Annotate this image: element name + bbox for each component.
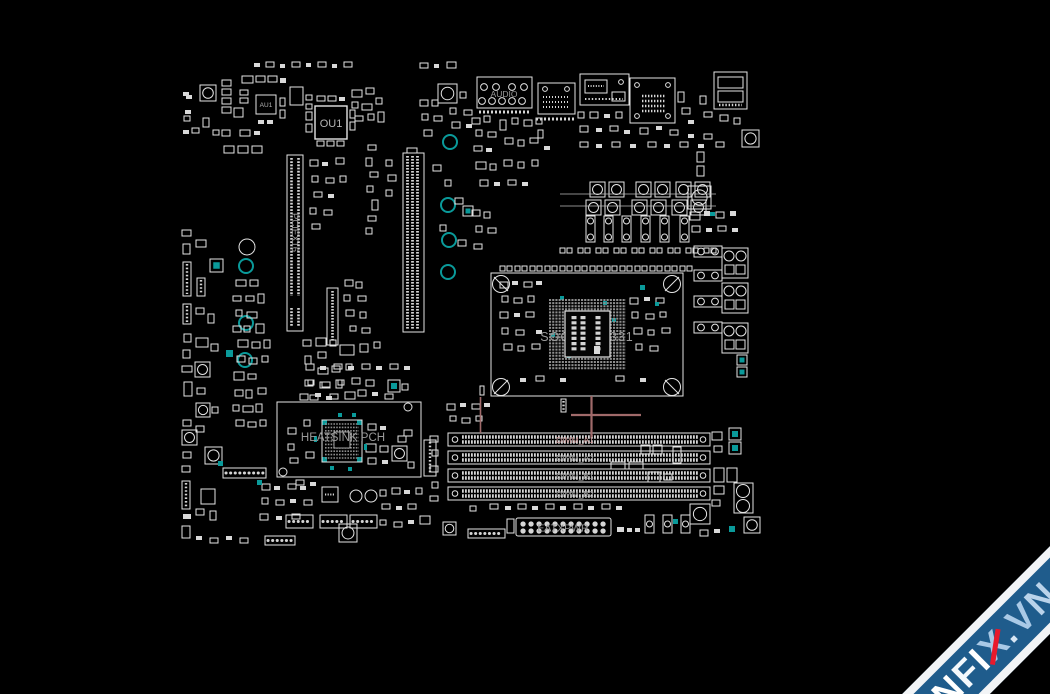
component	[339, 97, 345, 101]
component	[512, 281, 518, 285]
component	[560, 506, 566, 510]
component	[315, 393, 321, 397]
component	[466, 124, 472, 128]
component	[729, 526, 735, 532]
boardview-canvas: OU1 AU1 AUDIO	[0, 0, 1050, 694]
component	[357, 457, 362, 462]
component	[673, 519, 678, 524]
component	[520, 378, 526, 382]
component	[635, 528, 640, 532]
component	[617, 527, 624, 532]
chip-au1-label: AU1	[260, 102, 273, 109]
component	[382, 460, 388, 464]
component	[630, 144, 636, 148]
component	[536, 281, 542, 285]
component	[404, 490, 410, 494]
dimm-b2-label: DIMM_B2	[556, 489, 594, 499]
component	[185, 110, 191, 114]
component	[522, 182, 528, 186]
component	[348, 467, 352, 471]
component	[616, 506, 622, 510]
pciex16-label: PCIEX16	[289, 213, 300, 252]
dimm-b1-label: DIMM_B1	[556, 471, 594, 481]
component	[330, 466, 334, 470]
component	[596, 144, 602, 148]
heatsink-label: HEATSINK PCH	[301, 432, 385, 444]
component	[183, 514, 191, 519]
component	[655, 302, 659, 306]
dimm-a2-label: DIMM_A2	[556, 453, 594, 463]
chip-ou1-label: OU1	[320, 118, 343, 130]
component	[183, 130, 189, 134]
component	[376, 366, 382, 370]
component	[183, 92, 189, 96]
component	[532, 506, 538, 510]
component	[640, 378, 646, 382]
component	[640, 285, 645, 290]
dimm-a1-label: DIMM_A1	[556, 435, 594, 445]
component	[732, 228, 738, 232]
component	[505, 506, 511, 510]
component	[466, 209, 471, 214]
component	[710, 212, 715, 216]
component	[218, 461, 223, 466]
component	[484, 403, 490, 407]
audio-label: AUDIO	[491, 89, 518, 99]
component	[396, 506, 402, 510]
component	[656, 126, 662, 130]
component	[276, 516, 282, 520]
component	[364, 444, 367, 450]
component	[258, 120, 264, 124]
component	[688, 134, 694, 138]
component	[740, 370, 745, 375]
component	[714, 529, 720, 533]
component	[664, 144, 670, 148]
socket-center-component	[565, 311, 610, 357]
watermark-band: HNFIX.VN	[850, 520, 1050, 694]
eatxpwr-label: EATXPWR	[537, 523, 589, 535]
component	[688, 120, 694, 124]
component	[698, 144, 704, 148]
component	[460, 403, 466, 407]
component	[434, 64, 439, 68]
component	[732, 431, 738, 437]
component	[730, 211, 736, 216]
component	[310, 482, 316, 486]
component	[280, 64, 285, 68]
component	[494, 182, 500, 186]
component	[544, 146, 550, 150]
component	[732, 445, 738, 451]
component	[357, 420, 362, 425]
component	[404, 366, 410, 370]
component	[560, 378, 566, 382]
component	[290, 499, 296, 503]
component	[254, 131, 260, 135]
component	[257, 480, 262, 485]
watermark-red-slash	[990, 628, 1001, 664]
component	[267, 120, 273, 124]
component	[352, 413, 356, 417]
component	[348, 366, 354, 370]
component	[213, 262, 220, 269]
component	[196, 536, 202, 540]
component	[280, 78, 286, 83]
component	[391, 383, 397, 389]
component	[274, 486, 280, 490]
component	[322, 162, 328, 166]
component	[332, 64, 337, 68]
component	[254, 63, 260, 67]
component	[328, 194, 334, 198]
component	[300, 486, 306, 490]
component	[226, 350, 233, 357]
component	[514, 313, 520, 317]
component	[226, 536, 232, 540]
component	[624, 130, 630, 134]
component	[706, 228, 712, 232]
component	[380, 426, 386, 430]
component	[588, 506, 594, 510]
component	[486, 148, 492, 152]
component	[644, 297, 650, 301]
component	[627, 528, 632, 532]
component	[408, 520, 414, 524]
component	[704, 211, 710, 216]
component	[338, 413, 342, 417]
hnfix-watermark: HNFIX.VN	[815, 459, 1050, 694]
component	[320, 366, 326, 370]
component	[372, 392, 378, 396]
component	[596, 128, 602, 132]
component	[306, 63, 311, 67]
component	[604, 114, 610, 118]
component	[740, 358, 745, 363]
